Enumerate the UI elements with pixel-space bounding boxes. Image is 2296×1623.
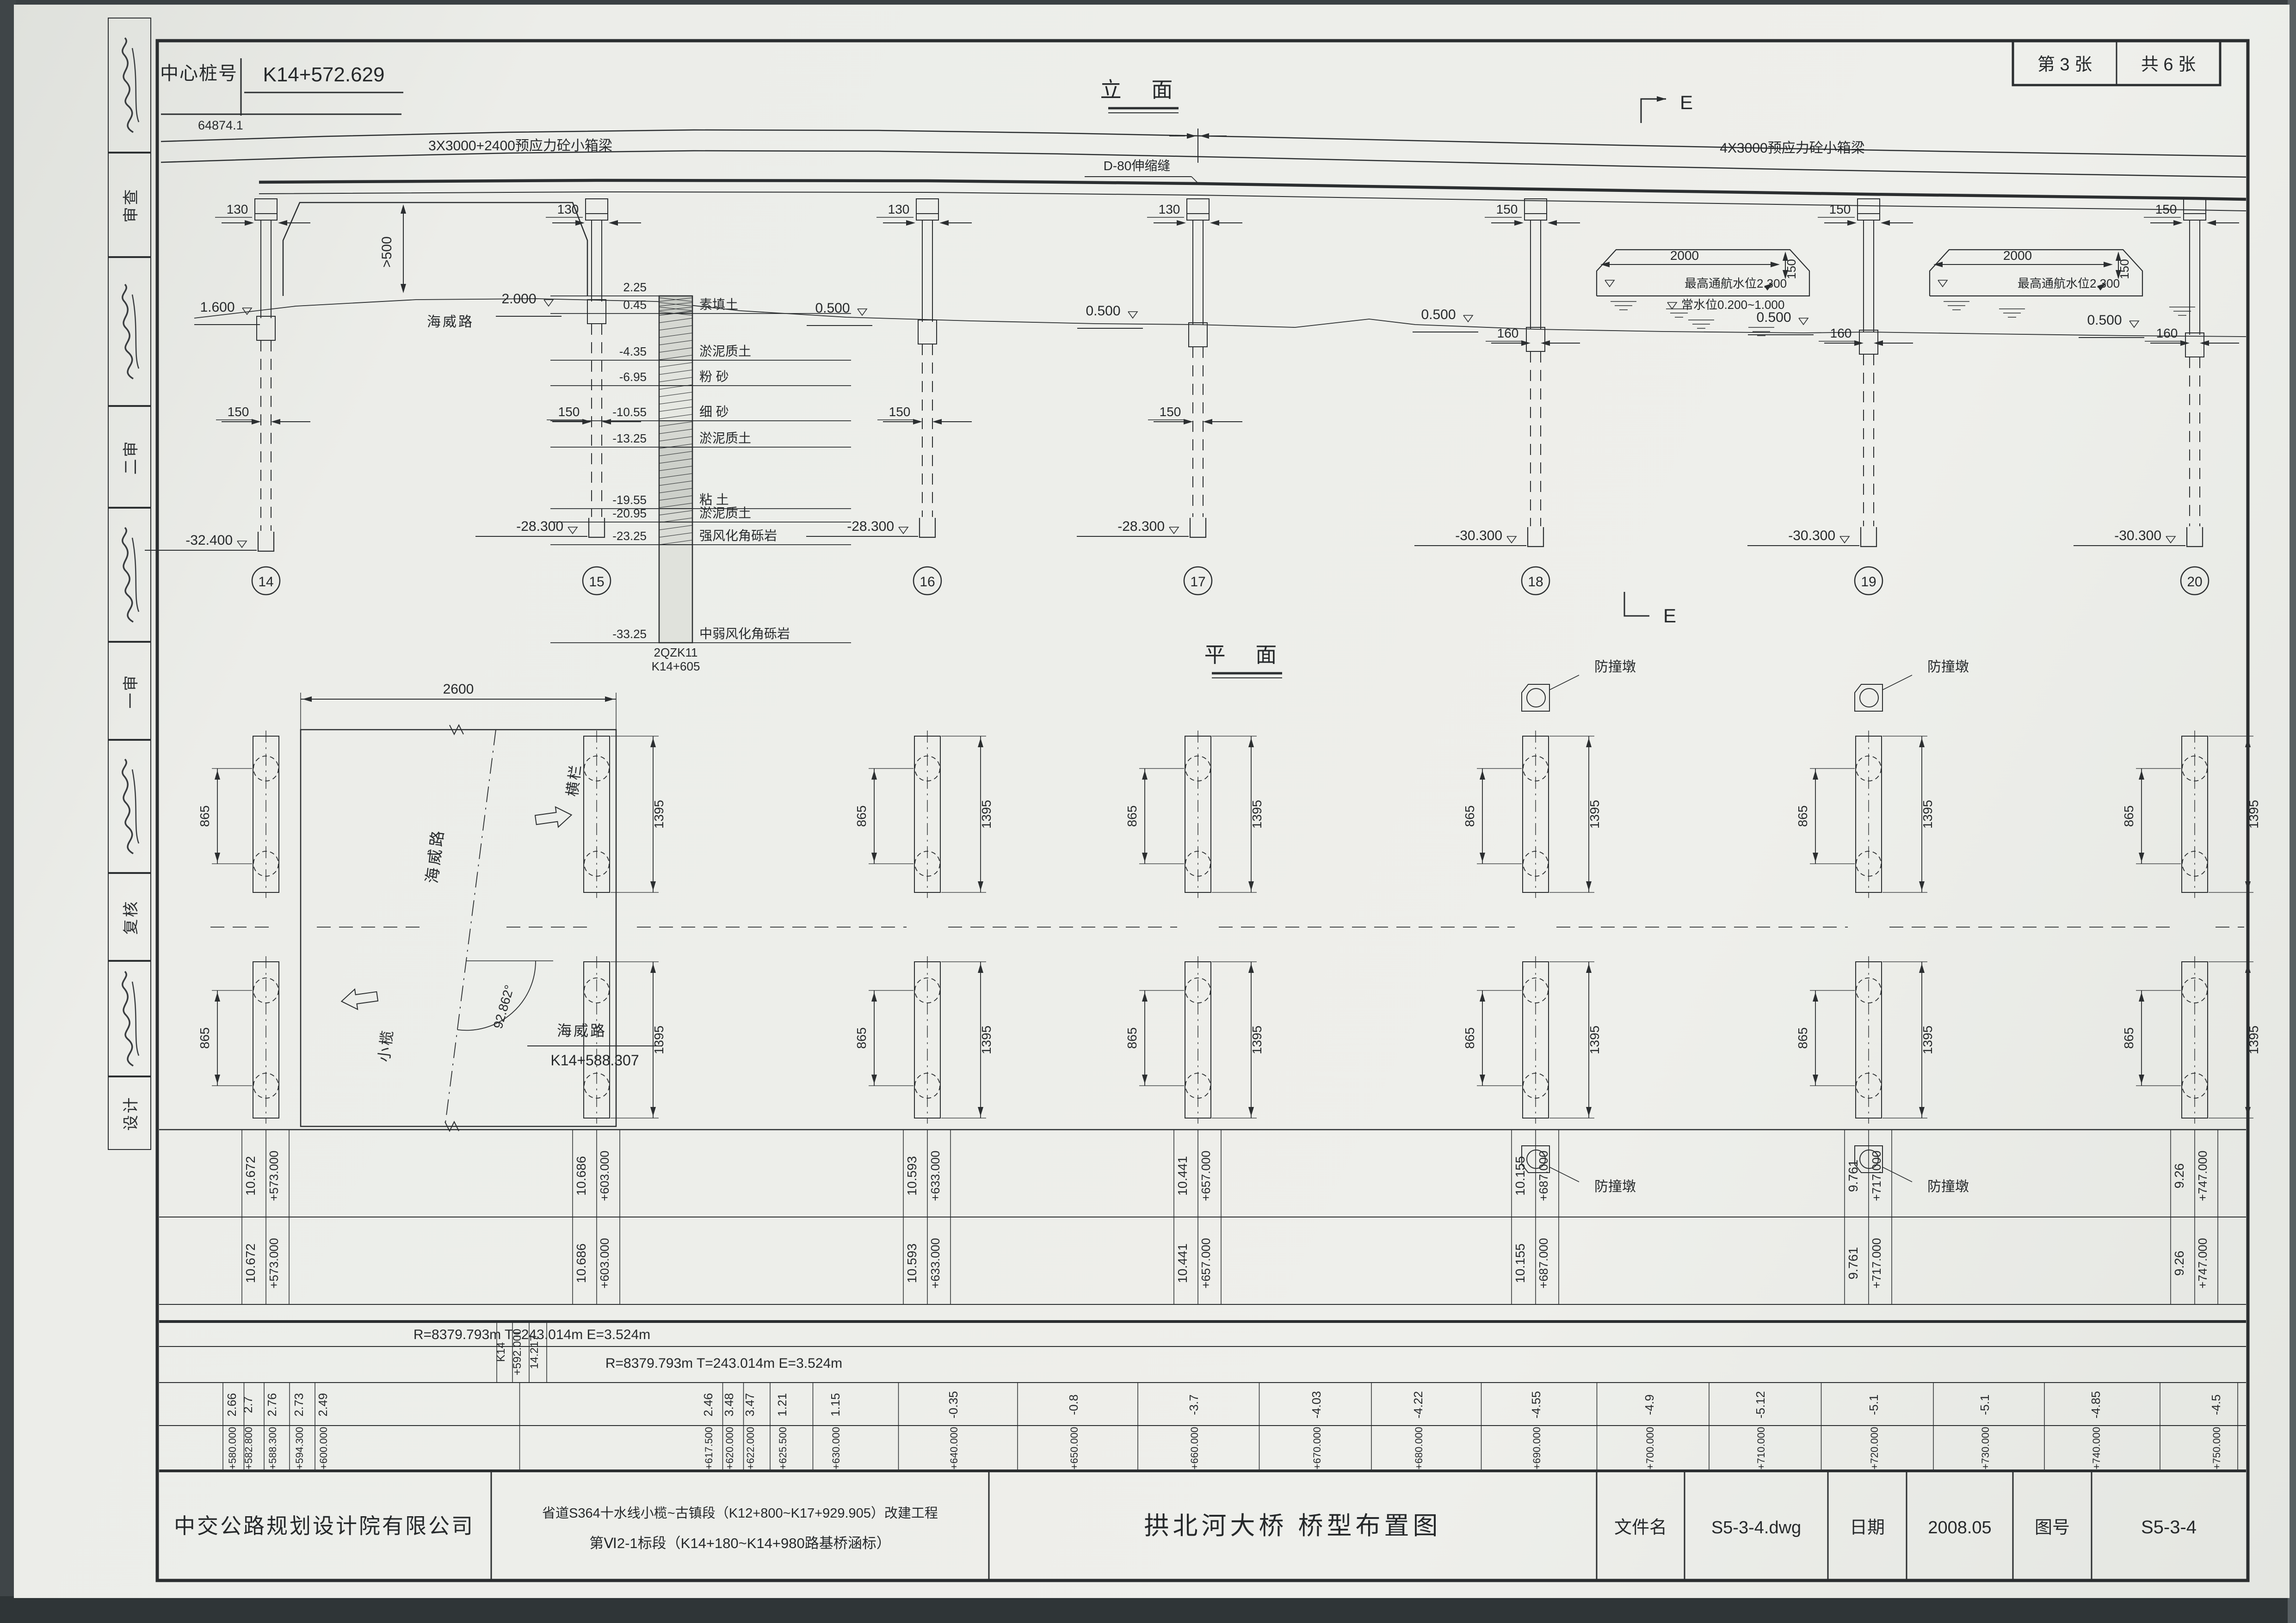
pier-bearing bbox=[2184, 214, 2206, 220]
break-mark bbox=[450, 725, 463, 734]
dim-arrow bbox=[1813, 770, 1818, 780]
dim-arrow bbox=[1813, 853, 1818, 862]
pier-number: 14 bbox=[258, 574, 273, 590]
stem-dim-arrow bbox=[602, 419, 611, 424]
dim-arrow bbox=[1480, 770, 1485, 780]
water-level-label: 0.500 bbox=[2087, 313, 2122, 328]
grade-value: -4.5 bbox=[2209, 1395, 2223, 1415]
soil-name-label: 淤泥质土 bbox=[699, 506, 751, 520]
nav-arrow bbox=[1771, 262, 1780, 267]
grade-value: -4.55 bbox=[1529, 1391, 1543, 1418]
deck-elevation-value: 10.593 bbox=[905, 1156, 919, 1196]
pier-cap-width: 150 bbox=[1496, 202, 1518, 216]
pile-spacing-label: 865 bbox=[1463, 1027, 1477, 1049]
dolphin-circle bbox=[1860, 689, 1878, 707]
ground-level-left: 1.600 bbox=[200, 300, 235, 315]
pier-footing bbox=[918, 320, 937, 344]
clearance-arrow bbox=[401, 284, 406, 293]
curve-note-lower: R=8379.793m T=243.014m E=3.524m bbox=[605, 1356, 842, 1371]
file-value: S5-3-4.dwg bbox=[1711, 1518, 1801, 1537]
dim-arrow bbox=[978, 881, 983, 891]
section-mark-top bbox=[1641, 99, 1666, 123]
dolphin-label-top: 防撞墩 bbox=[1927, 659, 1969, 675]
vc-elevation: 14.217 bbox=[528, 1335, 541, 1369]
pile-extent-label: 1395 bbox=[652, 1026, 666, 1054]
section-arrow bbox=[1657, 96, 1666, 102]
section-letter-bottom: E bbox=[1663, 605, 1676, 627]
grade-station: +588.300 bbox=[267, 1427, 278, 1469]
deck-elevation-station: +657.000 bbox=[1199, 1150, 1213, 1201]
dim-arrow bbox=[978, 964, 983, 973]
pier-stem-width: 150 bbox=[1160, 405, 1181, 419]
cap-dim-arrow bbox=[1881, 220, 1890, 226]
dim-arrow bbox=[1586, 738, 1592, 747]
total-length-label: 64874.1 bbox=[198, 118, 243, 132]
nav-width-label: 2000 bbox=[1670, 248, 1699, 263]
pile-spacing-label: 865 bbox=[198, 1027, 212, 1049]
dim-arrow bbox=[1586, 881, 1592, 891]
dim-arrow bbox=[1480, 1075, 1485, 1084]
deck-elevation-value: 10.672 bbox=[243, 1156, 258, 1196]
direction-right-arrow bbox=[534, 805, 573, 830]
ground-mark bbox=[544, 300, 553, 306]
grade-value: 2.46 bbox=[701, 1393, 715, 1417]
plan-dim-arrow bbox=[605, 696, 614, 702]
soil-layer-fill bbox=[659, 360, 692, 386]
sheet-number: 第 3 张 bbox=[2037, 55, 2092, 74]
dim-arrow bbox=[1480, 853, 1485, 862]
pile-spacing-label: 865 bbox=[854, 1027, 869, 1049]
pile-spacing-label: 865 bbox=[854, 805, 869, 827]
borehole-station: K14+605 bbox=[652, 659, 700, 673]
cap-dim-arrow bbox=[1548, 220, 1557, 226]
deck-elevation-station: +687.000 bbox=[1537, 1150, 1550, 1201]
pile-extent-label: 1395 bbox=[979, 1026, 994, 1054]
grade-station: +582.800 bbox=[243, 1427, 254, 1469]
soil-elev-label: -20.95 bbox=[612, 506, 647, 520]
tip-level-mark bbox=[2166, 536, 2175, 543]
water-level-mark bbox=[1799, 318, 1808, 325]
center-pile-value: K14+572.629 bbox=[263, 63, 384, 86]
pier-stem-width: 160 bbox=[1497, 326, 1519, 340]
dim-arrow bbox=[1586, 964, 1592, 973]
pier-bearing bbox=[586, 214, 608, 220]
nav-highwater-label: 最高通航水位2.300 bbox=[2018, 277, 2120, 290]
pile-spacing-label: 865 bbox=[1796, 805, 1810, 827]
deck-elevation-station: +687.000 bbox=[1537, 1238, 1550, 1288]
pile-extent-label: 1395 bbox=[1920, 800, 1935, 829]
dim-arrow bbox=[2245, 1107, 2251, 1116]
pile-tip-bracket bbox=[920, 518, 935, 537]
grade-station: +730.000 bbox=[1980, 1427, 1991, 1469]
grade-station: +622.000 bbox=[745, 1427, 756, 1469]
grade-value: 2.66 bbox=[225, 1393, 239, 1417]
tip-level-mark bbox=[1507, 536, 1516, 543]
cap-dim-arrow bbox=[939, 220, 949, 226]
pier-cap-width: 130 bbox=[1159, 202, 1180, 216]
water-level-label: 0.500 bbox=[1756, 310, 1791, 325]
crossing-angle-label: 92.862° bbox=[491, 984, 517, 1031]
dim-arrow bbox=[1586, 1107, 1592, 1116]
grade-station: +700.000 bbox=[1644, 1427, 1656, 1469]
soil-name-label: 粘 土 bbox=[699, 492, 729, 507]
dim-arrow bbox=[1919, 964, 1925, 973]
pile-tip-bracket bbox=[1861, 527, 1876, 547]
dim-arrow bbox=[2139, 770, 2144, 780]
vc-prefix: K14 bbox=[495, 1342, 507, 1362]
pile-extent-label: 1395 bbox=[2247, 1026, 2261, 1054]
pile-spacing-label: 865 bbox=[1463, 805, 1477, 827]
pile-tip-bracket bbox=[589, 518, 605, 537]
cap-dim-arrow bbox=[2173, 220, 2183, 226]
company-name: 中交公路规划设计院有限公司 bbox=[174, 1514, 475, 1538]
joint-arrow bbox=[1200, 133, 1209, 139]
pier-tip-elevation: -30.300 bbox=[2114, 528, 2161, 543]
grade-station: +630.000 bbox=[830, 1427, 842, 1469]
pier-cap-width: 130 bbox=[227, 202, 248, 216]
pile-extent-label: 1395 bbox=[979, 800, 994, 829]
grade-station: +670.000 bbox=[1311, 1427, 1323, 1469]
water-level-mark bbox=[2129, 321, 2139, 327]
date-value: 2008.05 bbox=[1928, 1518, 1991, 1537]
water-level-mark bbox=[858, 309, 867, 315]
grade-value: -4.22 bbox=[1411, 1391, 1425, 1418]
soil-elev-label: -23.25 bbox=[612, 529, 647, 543]
dim-arrow bbox=[1813, 992, 1818, 1002]
deck-elevation-station: +717.000 bbox=[1870, 1150, 1883, 1201]
pier-stem-width: 150 bbox=[558, 405, 580, 419]
grade-value: -5.1 bbox=[1867, 1395, 1881, 1415]
soil-name-label: 粉 砂 bbox=[699, 369, 729, 384]
vc-station: +592.000 bbox=[511, 1329, 524, 1376]
water-level-label: 0.500 bbox=[1086, 303, 1120, 319]
pier-number: 17 bbox=[1190, 574, 1205, 590]
grade-value: 3.47 bbox=[743, 1393, 757, 1417]
deck-elevation-value: 10.593 bbox=[905, 1243, 919, 1283]
sheet-total: 共 6 张 bbox=[2141, 55, 2196, 74]
nav-highwater-label: 最高通航水位2.300 bbox=[1685, 277, 1787, 290]
direction-right-label: 横栏 bbox=[564, 762, 585, 798]
grade-station: +580.000 bbox=[227, 1427, 238, 1469]
direction-left-label: 小榄 bbox=[376, 1028, 396, 1063]
deck-elevation-station: +603.000 bbox=[598, 1238, 611, 1288]
plan-title: 平 面 bbox=[1204, 643, 1289, 667]
grade-value: -5.1 bbox=[1978, 1395, 1992, 1415]
cap-dim-arrow bbox=[609, 220, 618, 226]
dim-arrow bbox=[215, 1075, 220, 1084]
deck-elevation-station: +633.000 bbox=[928, 1238, 942, 1288]
grade-station: +660.000 bbox=[1189, 1427, 1200, 1469]
deck-elevation-station: +573.000 bbox=[267, 1238, 281, 1288]
pile-extent-label: 1395 bbox=[1587, 800, 1602, 829]
center-pile-label: 中心桩号 bbox=[160, 63, 238, 84]
soil-layer-fill bbox=[659, 421, 692, 447]
pile-spacing-label: 865 bbox=[1125, 805, 1139, 827]
plan-road-label-lower: 海威路 bbox=[557, 1022, 607, 1039]
cap-dim-arrow bbox=[2207, 220, 2216, 226]
grade-station: +594.300 bbox=[294, 1427, 305, 1469]
dim-arrow bbox=[1142, 1075, 1148, 1084]
pier-bearing bbox=[1858, 214, 1880, 220]
cap-dim-arrow bbox=[906, 220, 915, 226]
nav-level-mark bbox=[1938, 280, 1947, 287]
dim-arrow bbox=[871, 770, 877, 780]
dim-arrow bbox=[650, 738, 656, 747]
plan-road-label-upper: 海威路 bbox=[423, 827, 447, 885]
cap-dim-arrow bbox=[1514, 220, 1524, 226]
dim-arrow bbox=[2245, 964, 2251, 973]
soil-name-label: 淤泥质土 bbox=[699, 344, 751, 358]
dim-arrow bbox=[1142, 992, 1148, 1002]
dim-arrow bbox=[978, 738, 983, 747]
grade-station: +750.000 bbox=[2211, 1427, 2222, 1469]
pile-extent-label: 1395 bbox=[652, 800, 666, 829]
nav-width-label: 2000 bbox=[2003, 248, 2032, 263]
pier-tip-elevation: -30.300 bbox=[1788, 528, 1835, 543]
dim-arrow bbox=[1919, 1107, 1925, 1116]
tip-level-mark bbox=[1169, 527, 1179, 534]
deck-elevation-value: 9.26 bbox=[2172, 1163, 2186, 1189]
plan-dim-arrow bbox=[302, 696, 312, 702]
pile-spacing-label: 865 bbox=[1125, 1027, 1139, 1049]
grade-value: -0.35 bbox=[946, 1391, 960, 1418]
scanned-bridge-drawing: { "page": { "sheet_no": "第 3 张", "sheet_… bbox=[0, 0, 2296, 1623]
pier-stem-width: 150 bbox=[889, 405, 911, 419]
grade-station: +650.000 bbox=[1068, 1427, 1080, 1469]
deck-elevation-station: +573.000 bbox=[267, 1150, 281, 1201]
soil-name-label: 淤泥质土 bbox=[699, 431, 751, 445]
pile-extent-label: 1395 bbox=[2247, 800, 2261, 829]
soil-layer-fill bbox=[659, 545, 692, 643]
pier-number: 16 bbox=[920, 574, 935, 590]
grade-station: +720.000 bbox=[1869, 1427, 1880, 1469]
dim-arrow bbox=[1480, 992, 1485, 1002]
deck-elevation-station: +747.000 bbox=[2196, 1150, 2210, 1201]
pier-footing bbox=[1859, 330, 1878, 354]
project-line2: 第Ⅵ2-1标段（K14+180~K14+980路基桥涵标） bbox=[589, 1535, 890, 1551]
water-level-label: 0.500 bbox=[1421, 307, 1456, 322]
soil-name-label: 中弱风化角砾岩 bbox=[699, 627, 790, 641]
normal-water-label: 常水位0.200~1.000 bbox=[1681, 298, 1784, 312]
pile-tip-bracket bbox=[1190, 518, 1206, 537]
dim-arrow bbox=[2139, 1075, 2144, 1084]
dim-arrow bbox=[1813, 1075, 1818, 1084]
water-level-mark bbox=[1463, 315, 1473, 322]
joint-arrow bbox=[1187, 133, 1196, 139]
pile-extent-label: 1395 bbox=[1920, 1026, 1935, 1054]
grade-station: +740.000 bbox=[2091, 1427, 2102, 1469]
water-level-mark bbox=[1128, 312, 1137, 318]
grade-station: +617.500 bbox=[703, 1427, 715, 1469]
grade-value: 1.15 bbox=[828, 1393, 842, 1417]
pile-extent-label: 1395 bbox=[1587, 1026, 1602, 1054]
grade-value: -4.85 bbox=[2089, 1391, 2103, 1418]
elevation-title: 立 面 bbox=[1100, 78, 1185, 102]
dolphin-label-bottom: 防撞墩 bbox=[1927, 1179, 1969, 1194]
dim-arrow bbox=[215, 770, 220, 780]
deck-elevation-value: 9.26 bbox=[2172, 1251, 2186, 1276]
grade-station: +625.500 bbox=[777, 1427, 789, 1469]
grade-station: +640.000 bbox=[948, 1427, 960, 1469]
dim-arrow bbox=[1248, 881, 1254, 891]
pier-cap-width: 150 bbox=[2155, 202, 2177, 216]
dim-arrow bbox=[1919, 738, 1925, 747]
direction-left-arrow bbox=[340, 986, 378, 1011]
deck-elevation-station: +633.000 bbox=[928, 1150, 942, 1201]
date-label: 日期 bbox=[1850, 1518, 1885, 1537]
pier-cap bbox=[916, 199, 938, 214]
normal-water-mark bbox=[1667, 302, 1677, 309]
pier-stem-width: 150 bbox=[228, 405, 249, 419]
dim-arrow bbox=[871, 992, 877, 1002]
soil-elev-label: 0.45 bbox=[623, 298, 647, 312]
girder-label-right: 4X3000预应力砼小箱梁 bbox=[1720, 141, 1864, 156]
pier-number: 18 bbox=[1528, 574, 1543, 590]
plan-width-label: 2600 bbox=[443, 682, 474, 697]
cap-dim-arrow bbox=[1847, 220, 1857, 226]
pier-cap-width: 130 bbox=[888, 202, 910, 216]
soil-name-label: 细 砂 bbox=[699, 405, 729, 419]
pier-footing bbox=[587, 300, 606, 324]
underpass-outline bbox=[283, 203, 587, 296]
borehole-surface-elev: 2.25 bbox=[623, 280, 647, 294]
cap-dim-arrow bbox=[278, 220, 287, 226]
dim-arrow bbox=[215, 853, 220, 862]
file-label: 文件名 bbox=[1614, 1518, 1667, 1537]
ground-level-right: 2.000 bbox=[501, 291, 536, 307]
pier-tip-elevation: -32.400 bbox=[185, 533, 233, 548]
pier-tip-elevation: -30.300 bbox=[1455, 528, 1502, 543]
underpass-road-label: 海威路 bbox=[427, 314, 474, 330]
soil-elev-label: -13.25 bbox=[612, 431, 647, 445]
number-label: 图号 bbox=[2035, 1518, 2070, 1537]
stem-dim-arrow bbox=[1203, 419, 1212, 424]
pier-tip-elevation: -28.300 bbox=[1117, 519, 1165, 534]
road-centerline bbox=[445, 730, 496, 1126]
dolphin-circle bbox=[1527, 689, 1545, 707]
soil-elev-label: -4.35 bbox=[619, 344, 647, 358]
pile-tip-bracket bbox=[1528, 527, 1543, 547]
crossing-station-label: K14+588.307 bbox=[550, 1052, 639, 1069]
deck-elevation-station: +747.000 bbox=[2196, 1238, 2210, 1288]
soil-elev-label: -10.55 bbox=[612, 405, 647, 419]
cap-dim-arrow bbox=[1210, 220, 1219, 226]
grade-station: +620.000 bbox=[724, 1427, 735, 1469]
pier-number: 20 bbox=[2187, 574, 2202, 590]
pier-footing bbox=[257, 316, 275, 340]
dim-arrow bbox=[1248, 1107, 1254, 1116]
dim-arrow bbox=[1142, 770, 1148, 780]
deck-elevation-value: 10.441 bbox=[1175, 1156, 1190, 1196]
pier-cap bbox=[586, 199, 608, 214]
soil-elev-label: -19.55 bbox=[612, 493, 647, 507]
pier-footing bbox=[1189, 323, 1207, 347]
dim-arrow bbox=[650, 1107, 656, 1116]
pier-bearing bbox=[1187, 214, 1209, 220]
pile-spacing-label: 865 bbox=[198, 805, 212, 827]
grade-station: +680.000 bbox=[1413, 1427, 1425, 1469]
grade-value: 2.73 bbox=[292, 1393, 306, 1417]
nav-level-mark bbox=[1605, 280, 1614, 287]
soil-name-label: 强风化角砾岩 bbox=[699, 529, 777, 543]
project-line1: 省道S364十水线小榄~古镇段（K12+800~K17+929.905）改建工程 bbox=[542, 1506, 938, 1521]
pier-bearing bbox=[1524, 214, 1547, 220]
tip-level-mark bbox=[899, 527, 908, 534]
dolphin-leader bbox=[1549, 675, 1579, 690]
deck-elevation-value: 10.155 bbox=[1513, 1243, 1527, 1283]
deck-elevation-value: 10.441 bbox=[1175, 1243, 1190, 1283]
grade-value: 3.48 bbox=[722, 1393, 736, 1417]
deck-elevation-value: 9.761 bbox=[1846, 1160, 1860, 1192]
dim-arrow bbox=[2245, 881, 2251, 891]
dim-arrow bbox=[2139, 992, 2144, 1002]
grade-value: 2.76 bbox=[265, 1393, 279, 1417]
pile-extent-label: 1395 bbox=[1250, 800, 1264, 829]
dolphin-leader bbox=[1882, 675, 1912, 690]
deck-elevation-value: 10.672 bbox=[243, 1243, 258, 1283]
dim-arrow bbox=[871, 853, 877, 862]
dolphin-leader bbox=[1882, 1167, 1912, 1182]
dim-arrow bbox=[1142, 853, 1148, 862]
dim-arrow bbox=[2139, 853, 2144, 862]
deck-elevation-station: +657.000 bbox=[1199, 1238, 1213, 1288]
dolphin-leader bbox=[1549, 1167, 1579, 1182]
dim-arrow bbox=[1248, 738, 1254, 747]
pier-cap-width: 150 bbox=[1829, 202, 1851, 216]
grade-value: -4.03 bbox=[1309, 1391, 1323, 1418]
grade-station: +710.000 bbox=[1755, 1427, 1767, 1469]
cap-dim-arrow bbox=[1177, 220, 1186, 226]
pile-extent-label: 1395 bbox=[1250, 1026, 1264, 1054]
borehole-id: 2QZK11 bbox=[654, 646, 698, 659]
tip-level-mark bbox=[237, 541, 247, 547]
pile-spacing-label: 865 bbox=[2122, 1027, 2136, 1049]
grade-value: 2.49 bbox=[316, 1393, 330, 1417]
grade-value: -5.12 bbox=[1753, 1391, 1767, 1418]
pier-bearing bbox=[916, 214, 938, 220]
dim-arrow bbox=[978, 1107, 983, 1116]
grade-station: +690.000 bbox=[1531, 1427, 1543, 1469]
soil-elev-label: -6.95 bbox=[619, 370, 647, 384]
drawing-title: 拱北河大桥 桥型布置图 bbox=[1144, 1512, 1441, 1540]
dim-arrow bbox=[1248, 964, 1254, 973]
grade-value: -4.9 bbox=[1642, 1395, 1656, 1415]
dim-arrow bbox=[215, 992, 220, 1002]
pier-number: 15 bbox=[589, 574, 604, 590]
section-letter-top: E bbox=[1680, 92, 1693, 113]
dim-arrow bbox=[650, 964, 656, 973]
soil-elev-label: -33.25 bbox=[612, 627, 647, 641]
deck-elevation-value: 10.155 bbox=[1513, 1156, 1527, 1196]
tip-level-mark bbox=[568, 527, 577, 534]
drawing-canvas: 第 3 张共 6 张中心桩号K14+572.62964874.1立 面EE3X3… bbox=[0, 0, 2296, 1623]
nav-arrow bbox=[2104, 262, 2113, 267]
clearance-arrow bbox=[401, 204, 406, 214]
dim-arrow bbox=[2245, 738, 2251, 747]
grade-value: -0.8 bbox=[1067, 1395, 1080, 1415]
grade-station: +600.000 bbox=[318, 1427, 329, 1469]
pile-tip-bracket bbox=[258, 532, 274, 551]
dim-arrow bbox=[1919, 881, 1925, 891]
stem-dim-arrow bbox=[932, 419, 942, 424]
deck-elevation-value: 10.686 bbox=[574, 1243, 588, 1283]
pier-cap bbox=[1187, 199, 1209, 214]
pier-stem-width: 160 bbox=[1830, 326, 1852, 340]
dim-arrow bbox=[650, 881, 656, 891]
deck-elevation-station: +717.000 bbox=[1870, 1238, 1883, 1288]
pier-bearing bbox=[255, 214, 277, 220]
pier-tip-elevation: -28.300 bbox=[516, 519, 563, 534]
